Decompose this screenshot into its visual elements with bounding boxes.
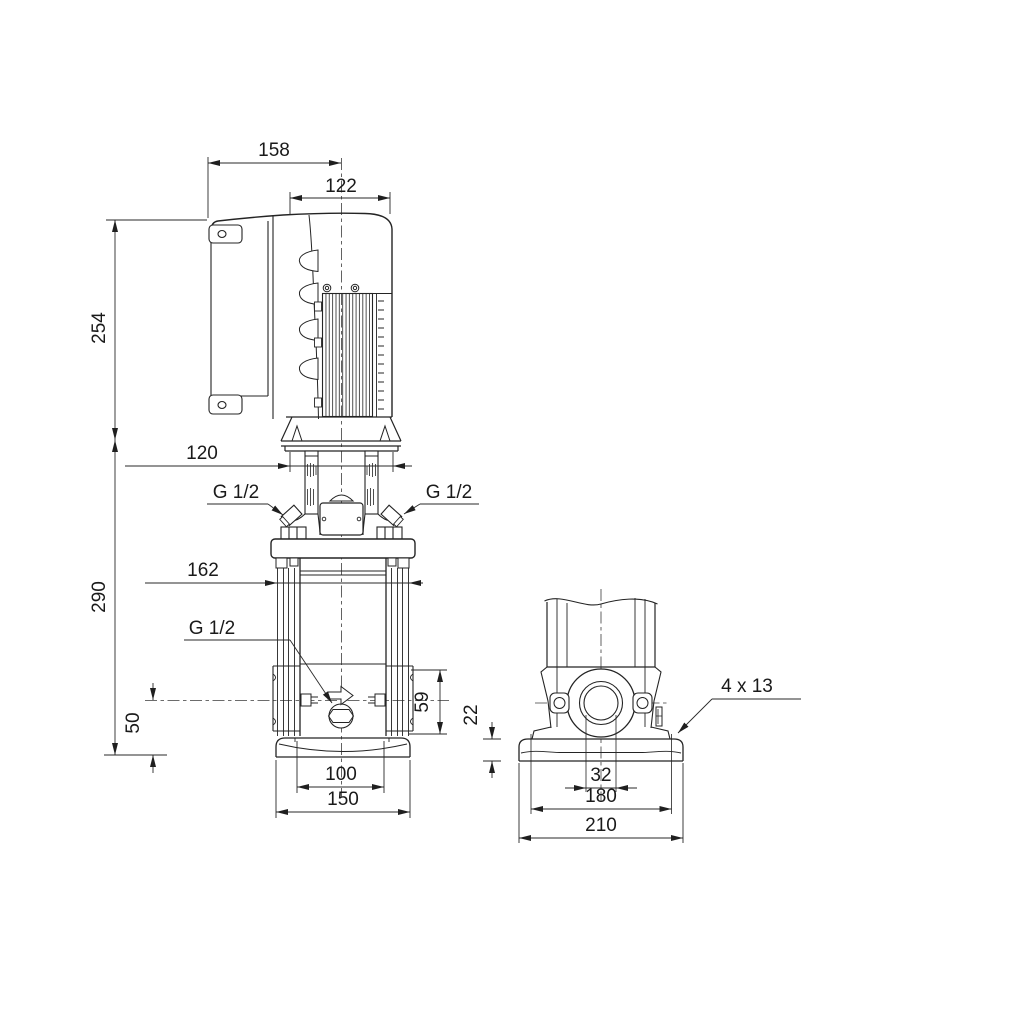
control-cover-edges xyxy=(211,216,273,419)
label-drain: G 1/2 xyxy=(184,618,332,703)
dim-50: 50 xyxy=(123,683,153,773)
port-clamp-ear-right xyxy=(633,693,652,713)
dim-22: 22 xyxy=(461,704,501,778)
dim-180: 180 xyxy=(531,786,672,809)
dim-122-label: 122 xyxy=(325,176,357,197)
label-bolt-holes: 4 x 13 xyxy=(678,676,801,733)
dim-158: 158 xyxy=(208,140,341,218)
flange-notches xyxy=(292,426,390,441)
dim-50-label: 50 xyxy=(123,712,144,733)
screw-icon xyxy=(351,284,359,292)
fin-end-ticks xyxy=(378,301,384,409)
dim-162-label: 162 xyxy=(187,560,219,581)
screw-icon xyxy=(323,284,331,292)
drain-plug xyxy=(329,704,353,728)
cover-screw-hole-top xyxy=(218,231,226,238)
foot-pad-left-side xyxy=(532,727,551,739)
dim-59: 59 xyxy=(409,670,447,734)
dim-59-label: 59 xyxy=(412,691,433,712)
motor-assembly xyxy=(209,213,392,419)
motor-clip-tabs xyxy=(299,250,318,380)
chamber-top-lines xyxy=(300,571,386,575)
dim-122: 122 xyxy=(290,176,390,215)
bolt-holes-label: 4 x 13 xyxy=(721,676,773,697)
dim-100-label: 100 xyxy=(325,764,357,785)
head-flange xyxy=(271,539,415,558)
dim-290: 290 xyxy=(89,440,167,755)
chamber-stack xyxy=(273,558,413,736)
dim-150-label: 150 xyxy=(327,789,359,810)
dim-290-label: 290 xyxy=(89,581,110,613)
motor-mid-seam xyxy=(309,215,319,419)
vent-left-label: G 1/2 xyxy=(213,482,259,503)
pump-foot xyxy=(276,738,410,757)
label-vent-right: G 1/2 xyxy=(404,482,479,514)
cooling-fin-block xyxy=(323,294,373,417)
coupling xyxy=(320,503,363,535)
coupling-guard-right xyxy=(365,451,378,514)
staybolt-nuts xyxy=(276,558,409,568)
pump-dimensional-drawing: 158 122 254 290 120 162 xyxy=(0,0,1024,1024)
motor-flange-adapter xyxy=(281,417,401,451)
vent-right-label: G 1/2 xyxy=(426,482,472,503)
dim-32: 32 xyxy=(565,765,637,788)
coupling-guard-left xyxy=(305,451,318,514)
dim-32-label: 32 xyxy=(590,765,611,786)
foot-pad-right-side xyxy=(651,727,670,739)
dim-210-label: 210 xyxy=(585,815,617,836)
dim-120-label: 120 xyxy=(186,443,218,464)
label-vent-left: G 1/2 xyxy=(207,482,283,515)
dim-254: 254 xyxy=(89,220,207,440)
centerlines-front xyxy=(145,158,449,797)
dim-22-label: 22 xyxy=(461,704,482,725)
foot-skirt xyxy=(279,744,407,752)
flow-direction-arrow-icon xyxy=(328,687,353,705)
dim-254-label: 254 xyxy=(89,312,110,344)
port-clamp-ear-left xyxy=(550,693,569,713)
drain-label: G 1/2 xyxy=(189,618,235,639)
cover-screw-hole-bottom xyxy=(218,402,226,409)
vent-plug-left xyxy=(279,505,302,527)
technical-drawing-page: 158 122 254 290 120 162 xyxy=(0,0,1024,1024)
terminal-screws xyxy=(323,284,359,292)
dim-100: 100 xyxy=(297,741,384,793)
dim-180-label: 180 xyxy=(585,786,617,807)
nameplate-clip xyxy=(656,707,662,726)
port-flange-outer xyxy=(567,669,635,737)
vent-plug-right xyxy=(381,505,404,527)
dim-158-label: 158 xyxy=(258,140,290,161)
shaft-dome xyxy=(330,495,353,501)
dimensions-front: 158 122 254 290 120 162 xyxy=(89,140,479,818)
front-view xyxy=(145,158,449,797)
